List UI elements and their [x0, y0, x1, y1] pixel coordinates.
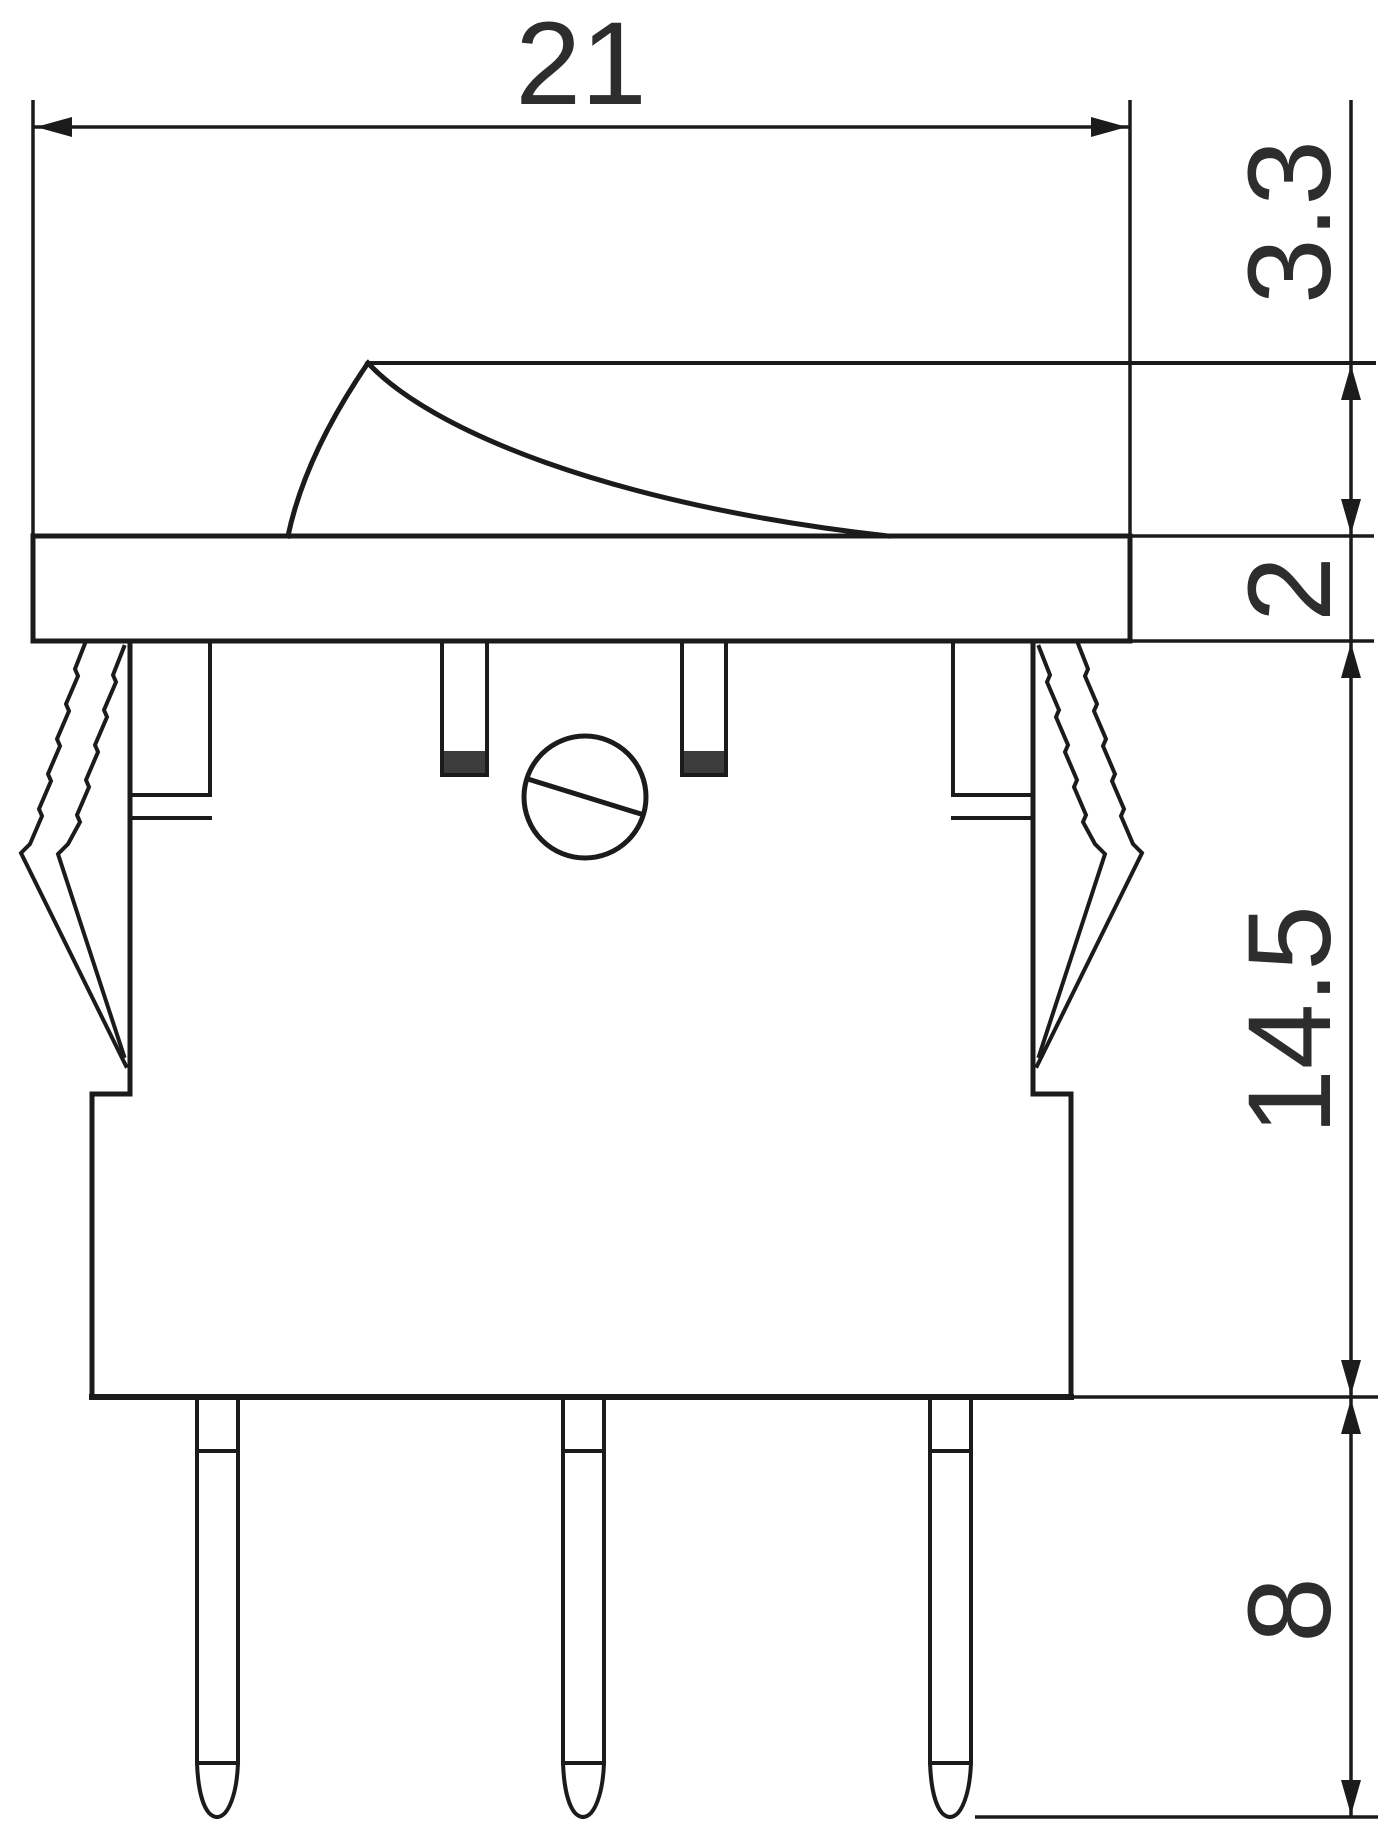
drawing-lines [21, 363, 1374, 1817]
overall-width-label: 21 [515, 0, 646, 130]
terminal-length-label: 8 [1224, 1577, 1356, 1643]
terminal-pin-1 [197, 1397, 238, 1817]
screw-slot [531, 780, 641, 814]
terminal-pin-2 [563, 1397, 604, 1817]
right-post-cap [684, 751, 724, 773]
terminal-pin-3 [930, 1397, 971, 1817]
left-mounting-notch [130, 641, 210, 818]
terminal-arrow-top [1341, 1399, 1361, 1434]
body-arrow-bottom [1341, 1360, 1361, 1395]
rocker-actuator-left-edge [288, 363, 368, 536]
terminal-arrow-bottom [1341, 1780, 1361, 1815]
right-snap-wing-outer-edge [1037, 641, 1142, 1066]
actuator-arrow-top [1341, 365, 1361, 400]
dimension-lines [33, 100, 1378, 1817]
right-mounting-notch [953, 641, 1033, 818]
rocker-actuator-top-curve [368, 363, 888, 536]
bezel-thickness-label: 2 [1224, 556, 1356, 622]
width-arrow-right [1091, 117, 1127, 137]
width-arrow-left [36, 117, 72, 137]
dimension-arrowheads [36, 117, 1361, 1815]
technical-drawing-page: 21 3.3 2 14.5 8 [0, 0, 1400, 1842]
body-height-label: 14.5 [1224, 905, 1356, 1135]
left-snap-wing-outer-edge [21, 641, 126, 1066]
bezel-flange [33, 536, 1130, 641]
actuator-arrow-bottom [1341, 499, 1361, 534]
bezel-arrow-bottom [1341, 643, 1361, 678]
rocker-switch-drawing: 21 3.3 2 14.5 8 [0, 0, 1400, 1842]
left-post-cap [444, 751, 485, 773]
actuator-height-label: 3.3 [1224, 140, 1356, 304]
